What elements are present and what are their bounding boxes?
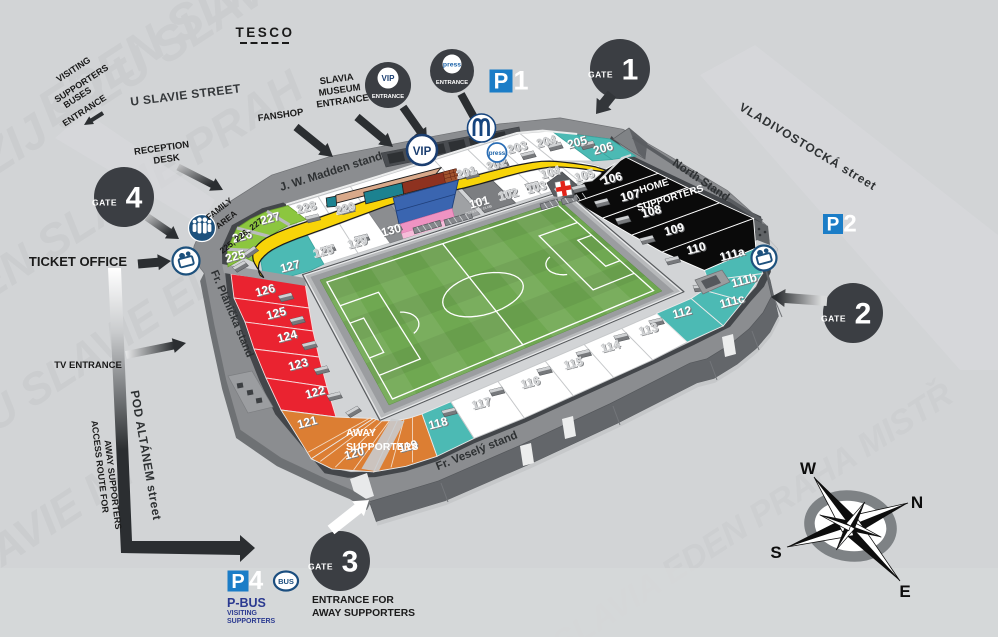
svg-text:3: 3 [342, 546, 359, 579]
svg-text:ENTRANCE: ENTRANCE [372, 94, 404, 100]
svg-text:1: 1 [513, 66, 528, 96]
svg-text:S: S [770, 543, 781, 562]
svg-text:TESCO: TESCO [235, 25, 294, 40]
svg-text:SUPPORTERS: SUPPORTERS [227, 618, 276, 625]
svg-text:GATE: GATE [588, 70, 613, 80]
svg-text:VIP: VIP [382, 74, 396, 83]
svg-text:W: W [800, 459, 817, 478]
svg-text:VISITING: VISITING [227, 610, 258, 617]
svg-text:2: 2 [855, 298, 872, 331]
svg-text:2: 2 [843, 211, 856, 238]
svg-text:ENTRANCE FOR: ENTRANCE FOR [312, 595, 394, 606]
svg-text:P: P [494, 69, 509, 94]
svg-text:AWAY SUPPORTERS: AWAY SUPPORTERS [312, 608, 415, 619]
svg-text:4: 4 [126, 182, 143, 215]
svg-text:GATE: GATE [821, 314, 846, 324]
svg-text:4: 4 [249, 565, 264, 595]
svg-text:P: P [231, 571, 244, 593]
svg-text:P-BUS: P-BUS [227, 596, 266, 610]
svg-text:P: P [827, 215, 840, 236]
svg-text:TICKET OFFICE: TICKET OFFICE [29, 254, 128, 269]
svg-text:ENTRANCE: ENTRANCE [436, 80, 468, 86]
svg-text:SUPPORTERS: SUPPORTERS [346, 441, 418, 453]
svg-text:GATE: GATE [92, 198, 117, 208]
svg-text:press: press [489, 150, 506, 157]
svg-text:N: N [911, 493, 923, 512]
svg-text:TV ENTRANCE: TV ENTRANCE [54, 360, 122, 371]
svg-text:GATE: GATE [308, 562, 333, 572]
svg-text:VIP: VIP [413, 146, 432, 158]
svg-text:AWAY: AWAY [346, 427, 376, 439]
svg-text:BUS: BUS [278, 577, 294, 586]
svg-text:1: 1 [622, 54, 639, 87]
svg-text:E: E [899, 582, 910, 601]
svg-text:press: press [443, 62, 461, 69]
